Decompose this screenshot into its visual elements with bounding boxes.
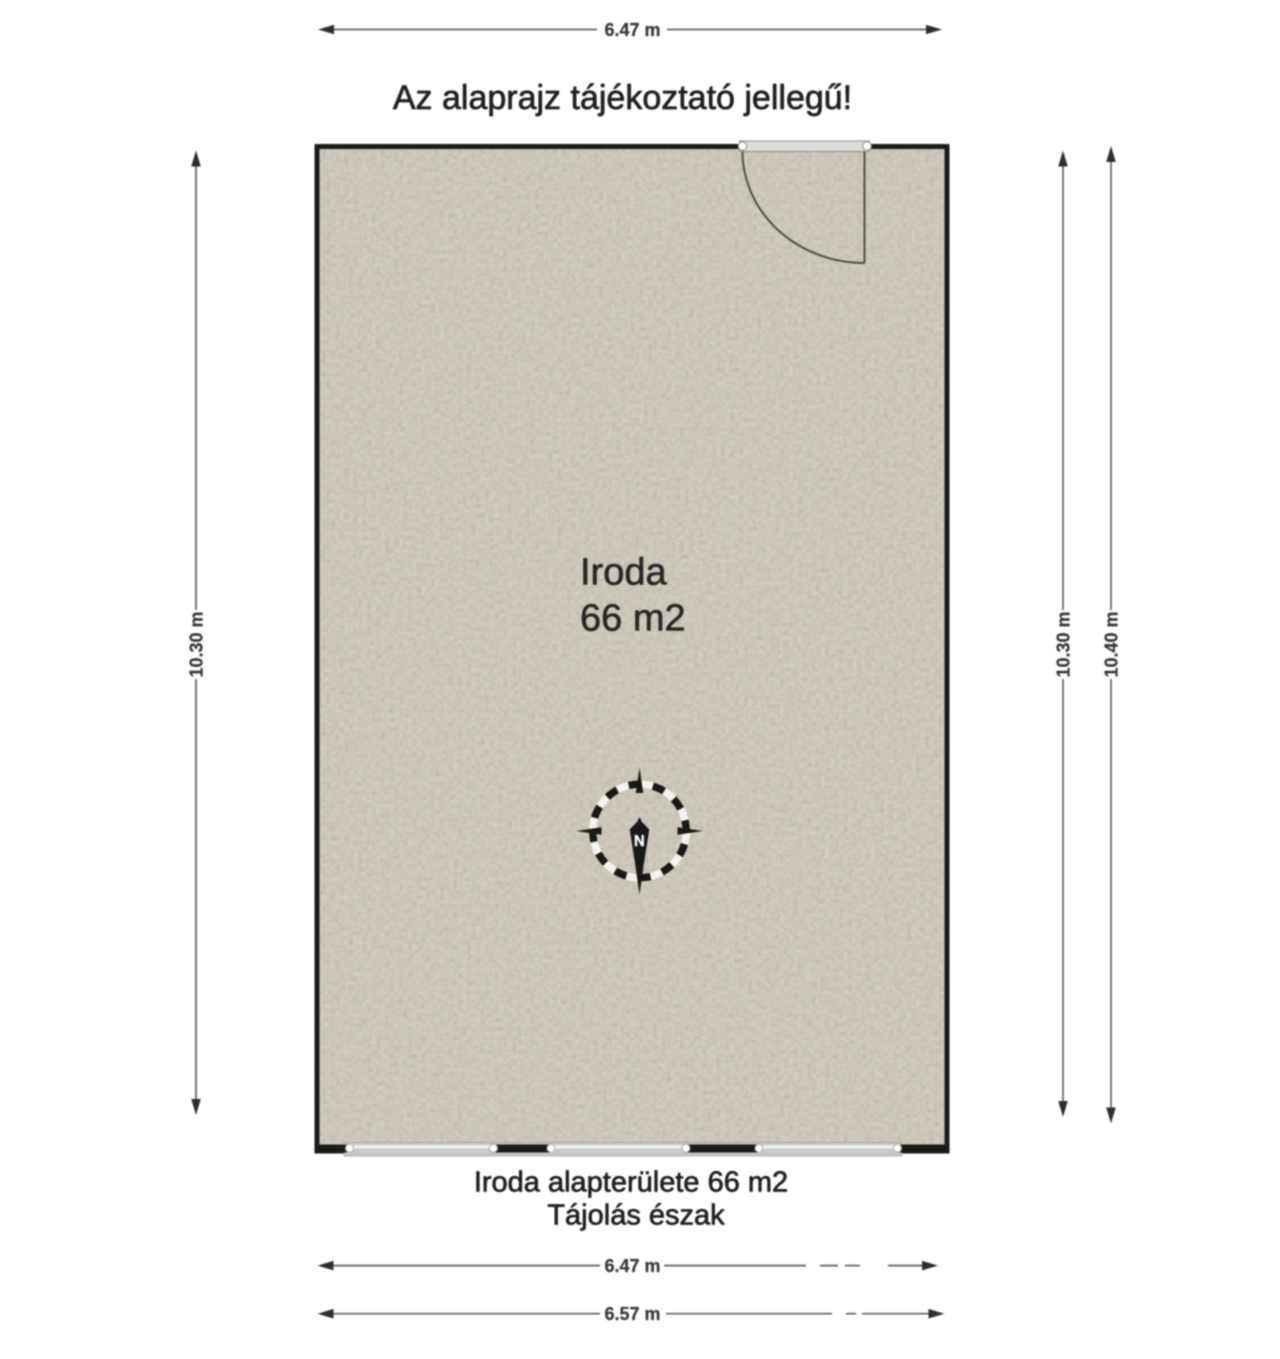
svg-text:Iroda: Iroda xyxy=(580,552,667,594)
svg-text:66 m2: 66 m2 xyxy=(580,598,686,640)
svg-text:10.30 m: 10.30 m xyxy=(187,611,207,677)
svg-text:Iroda alapterülete 66 m2: Iroda alapterülete 66 m2 xyxy=(474,1167,788,1199)
svg-text:6.47 m: 6.47 m xyxy=(604,1256,660,1276)
svg-text:6.57 m: 6.57 m xyxy=(604,1304,660,1324)
svg-text:Tájolás észak: Tájolás észak xyxy=(547,1200,725,1232)
svg-text:Az alaprajz tájékoztató jelleg: Az alaprajz tájékoztató jellegű! xyxy=(393,79,852,117)
svg-text:6.47 m: 6.47 m xyxy=(604,20,660,40)
svg-text:10.30 m: 10.30 m xyxy=(1054,611,1074,677)
svg-text:10.40 m: 10.40 m xyxy=(1102,611,1122,677)
